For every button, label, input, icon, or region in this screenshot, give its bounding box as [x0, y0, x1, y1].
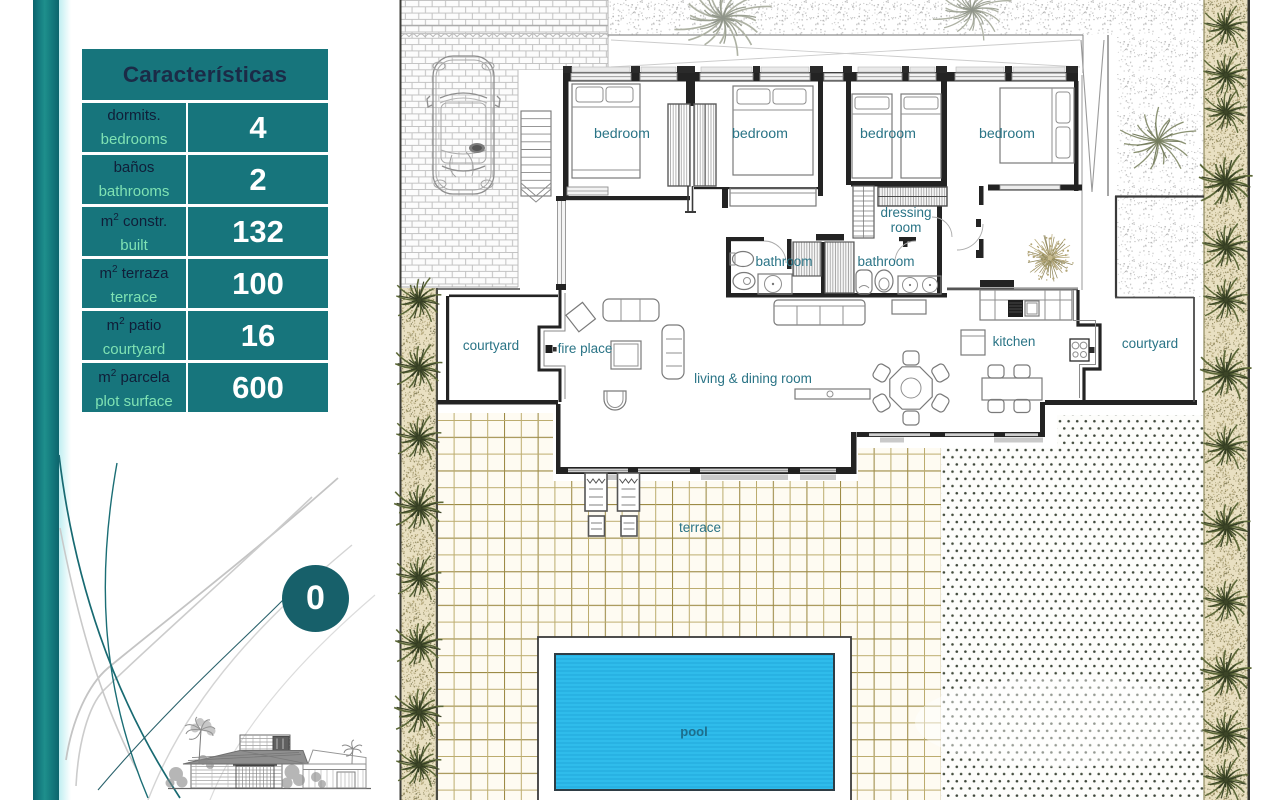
svg-text:bedroom: bedroom	[860, 126, 916, 142]
svg-text:fire place: fire place	[558, 341, 613, 356]
svg-text:courtyard: courtyard	[1122, 336, 1178, 351]
svg-text:kitchen: kitchen	[993, 334, 1036, 349]
svg-text:courtyard: courtyard	[463, 338, 519, 353]
svg-text:bathroom: bathroom	[857, 254, 914, 269]
svg-text:dressing: dressing	[880, 205, 931, 220]
svg-text:terrace: terrace	[679, 520, 721, 535]
svg-text:room: room	[891, 220, 922, 235]
svg-text:bedroom: bedroom	[732, 126, 788, 142]
svg-text:living & dining room: living & dining room	[694, 371, 812, 386]
svg-text:bathroom: bathroom	[755, 254, 812, 269]
svg-text:pool: pool	[680, 724, 707, 739]
svg-text:bedroom: bedroom	[594, 126, 650, 142]
svg-text:bedroom: bedroom	[979, 126, 1035, 142]
